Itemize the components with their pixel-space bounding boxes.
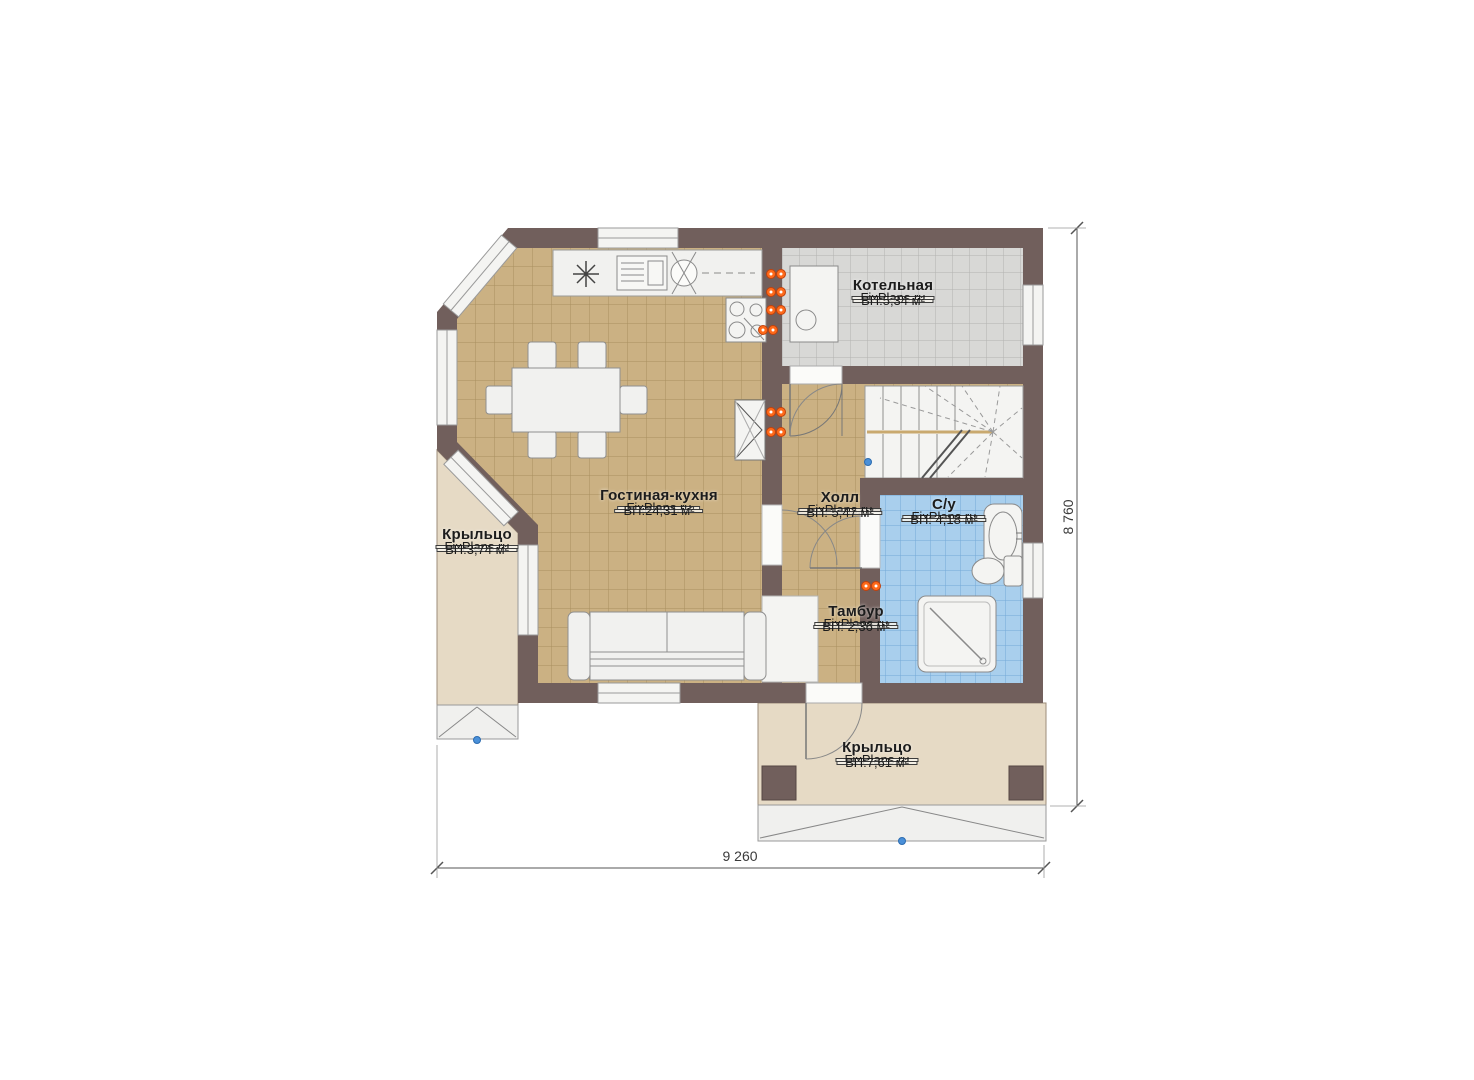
dimension-width-label: 9 260 xyxy=(722,848,757,864)
window-boiler-right xyxy=(1023,285,1043,345)
floor-plan-page: Котельная FixPlans.ru ВП:5,34 м² Гостина… xyxy=(0,0,1474,1080)
room-label-gostinaya: Гостиная-кухня FixPlans.ru ВП:24,31 м² xyxy=(600,487,718,513)
room-label-holl: Холл FixPlans.ru ВП: 5,47 м² xyxy=(797,489,882,515)
dimension-height-label: 8 760 xyxy=(1060,499,1076,534)
dishwasher xyxy=(617,256,667,290)
vent-box xyxy=(735,400,765,460)
porch-column xyxy=(762,766,796,800)
room-area: ВП:7,61 м² xyxy=(836,761,918,765)
floor-plan-drawing xyxy=(0,0,1474,1080)
bathroom-top-wall xyxy=(860,478,1023,495)
kitchen-counter xyxy=(553,250,762,296)
window-porch-wall xyxy=(518,545,538,635)
chair xyxy=(528,342,556,369)
sofa-armrest xyxy=(568,612,590,680)
marker-dot-icon xyxy=(865,459,872,466)
room-label-su: С/у FixPlans.ru ВП: 4,18 м² xyxy=(901,496,986,522)
porch-column xyxy=(1009,766,1043,800)
chair xyxy=(620,386,647,414)
chair xyxy=(578,431,606,458)
opening-living-tambur xyxy=(762,596,818,682)
window-bathroom-right xyxy=(1023,543,1043,598)
shower-tray xyxy=(918,596,996,672)
porch-left-steps xyxy=(437,705,518,739)
chair xyxy=(578,342,606,369)
room-area: ВП: 2,36 м² xyxy=(813,625,898,629)
chair xyxy=(486,386,513,414)
room-area: ВП: 4,18 м² xyxy=(901,518,986,522)
room-area: ВП:5,34 м² xyxy=(852,299,934,303)
sofa-armrest xyxy=(744,612,766,680)
window-kitchen-top xyxy=(598,228,678,248)
window-bottom-wall xyxy=(598,683,680,703)
room-area: ВП: 5,47 м² xyxy=(797,511,882,515)
chair xyxy=(528,431,556,458)
toilet xyxy=(972,556,1022,586)
room-label-kryltso-left: Крыльцо FixPlans.ru ВП:3,74 м² xyxy=(435,526,518,552)
boiler-unit xyxy=(790,266,838,342)
dining-table xyxy=(512,368,620,432)
marker-dot-icon xyxy=(899,838,906,845)
room-area: ВП:3,74 м² xyxy=(436,548,518,552)
marker-dot-icon xyxy=(474,737,481,744)
room-label-kryltso-bottom: Крыльцо FixPlans.ru ВП:7,61 м² xyxy=(835,739,918,765)
window-left-wall xyxy=(437,330,457,425)
room-label-kotelnaya: Котельная FixPlans.ru ВП:5,34 м² xyxy=(851,277,934,303)
room-area: ВП:24,31 м² xyxy=(614,509,703,513)
sofa xyxy=(568,612,766,680)
room-label-tambur: Тамбур FixPlans.ru ВП: 2,36 м² xyxy=(813,603,898,629)
porch-bottom-steps xyxy=(758,805,1046,841)
porch-bottom xyxy=(758,703,1046,845)
stove xyxy=(726,298,766,342)
